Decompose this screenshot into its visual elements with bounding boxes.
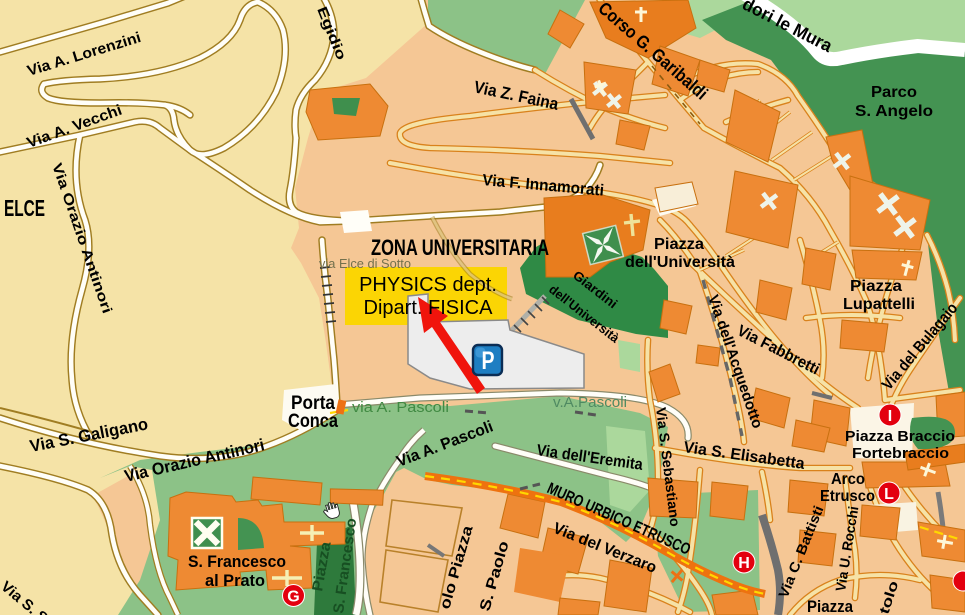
svg-text:Dipart. FISICA: Dipart. FISICA [364, 297, 494, 319]
svg-text:Etrusco: Etrusco [820, 488, 875, 505]
svg-text:Arco: Arco [831, 471, 865, 488]
svg-text:Piazza Braccio: Piazza Braccio [845, 428, 955, 445]
svg-text:al Prato: al Prato [205, 571, 265, 590]
svg-text:Conca: Conca [288, 411, 338, 432]
svg-text:Piazza: Piazza [807, 597, 853, 615]
svg-text:P: P [482, 347, 495, 375]
svg-text:I: I [888, 408, 892, 425]
svg-text:H: H [738, 555, 750, 572]
svg-text:via Elce di Sotto: via Elce di Sotto [319, 256, 411, 271]
svg-text:L: L [884, 486, 894, 503]
svg-text:PHYSICS dept.: PHYSICS dept. [359, 274, 497, 296]
svg-text:G: G [287, 589, 299, 606]
svg-text:Fortebraccio: Fortebraccio [852, 445, 949, 462]
svg-text:via A. Pascoli: via A. Pascoli [352, 399, 449, 416]
svg-text:Parco: Parco [871, 84, 917, 101]
svg-text:S. Angelo: S. Angelo [855, 103, 933, 120]
svg-text:Piazza: Piazza [654, 236, 704, 253]
svg-text:S. Francesco: S. Francesco [188, 552, 286, 571]
svg-text:dell'Università: dell'Università [625, 254, 735, 271]
svg-text:ELCE: ELCE [4, 195, 45, 221]
svg-text:Piazza: Piazza [850, 278, 902, 295]
svg-text:Lupattelli: Lupattelli [843, 296, 915, 313]
svg-text:v.A.Pascoli: v.A.Pascoli [553, 394, 627, 411]
